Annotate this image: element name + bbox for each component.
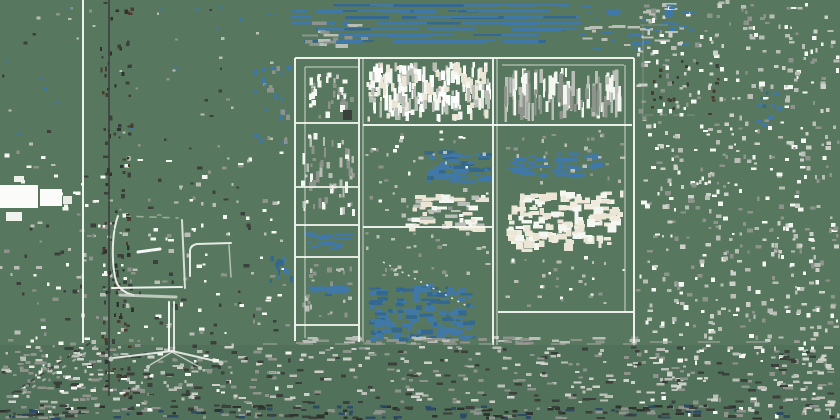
scene-canvas xyxy=(0,0,840,420)
scene-stage xyxy=(0,0,840,420)
